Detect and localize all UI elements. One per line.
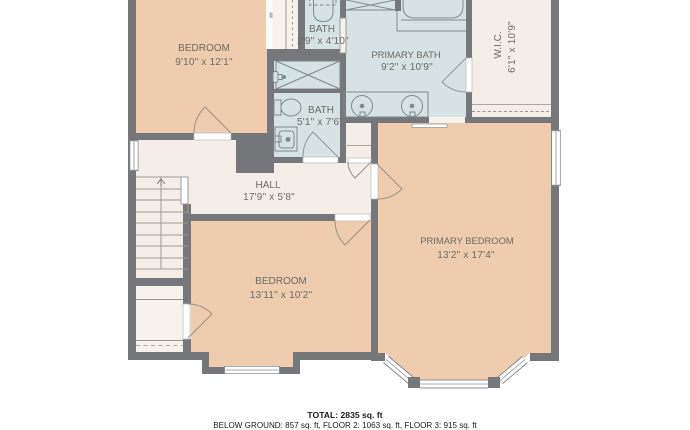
svg-text:9'10" x 12'1": 9'10" x 12'1" bbox=[175, 57, 233, 68]
svg-text:5'1" x 7'6": 5'1" x 7'6" bbox=[297, 117, 343, 128]
svg-text:BEDROOM: BEDROOM bbox=[178, 43, 230, 54]
svg-text:PRIMARY BATH: PRIMARY BATH bbox=[371, 49, 440, 60]
svg-text:HALL: HALL bbox=[255, 180, 280, 191]
svg-text:BATH: BATH bbox=[309, 24, 335, 35]
svg-text:BEDROOM: BEDROOM bbox=[255, 276, 307, 287]
svg-text:TOTAL: 2835 sq. ft: TOTAL: 2835 sq. ft bbox=[307, 410, 382, 420]
svg-text:2'9" x 4'10": 2'9" x 4'10" bbox=[297, 36, 349, 47]
svg-text:W.I.C.: W.I.C. bbox=[493, 31, 504, 58]
svg-text:13'11" x 10'2": 13'11" x 10'2" bbox=[250, 290, 313, 301]
svg-text:PRIMARY BEDROOM: PRIMARY BEDROOM bbox=[420, 235, 514, 246]
svg-text:9'2" x 10'9": 9'2" x 10'9" bbox=[381, 62, 433, 73]
svg-text:BATH: BATH bbox=[308, 105, 334, 116]
svg-text:17'9" x 5'8": 17'9" x 5'8" bbox=[243, 192, 295, 203]
svg-text:13'2" x 17'4": 13'2" x 17'4" bbox=[437, 250, 495, 261]
svg-text:6'1" x 10'9": 6'1" x 10'9" bbox=[507, 21, 518, 73]
svg-text:BELOW GROUND: 857 sq. ft, FLOO: BELOW GROUND: 857 sq. ft, FLOOR 2: 1063 … bbox=[213, 421, 477, 430]
